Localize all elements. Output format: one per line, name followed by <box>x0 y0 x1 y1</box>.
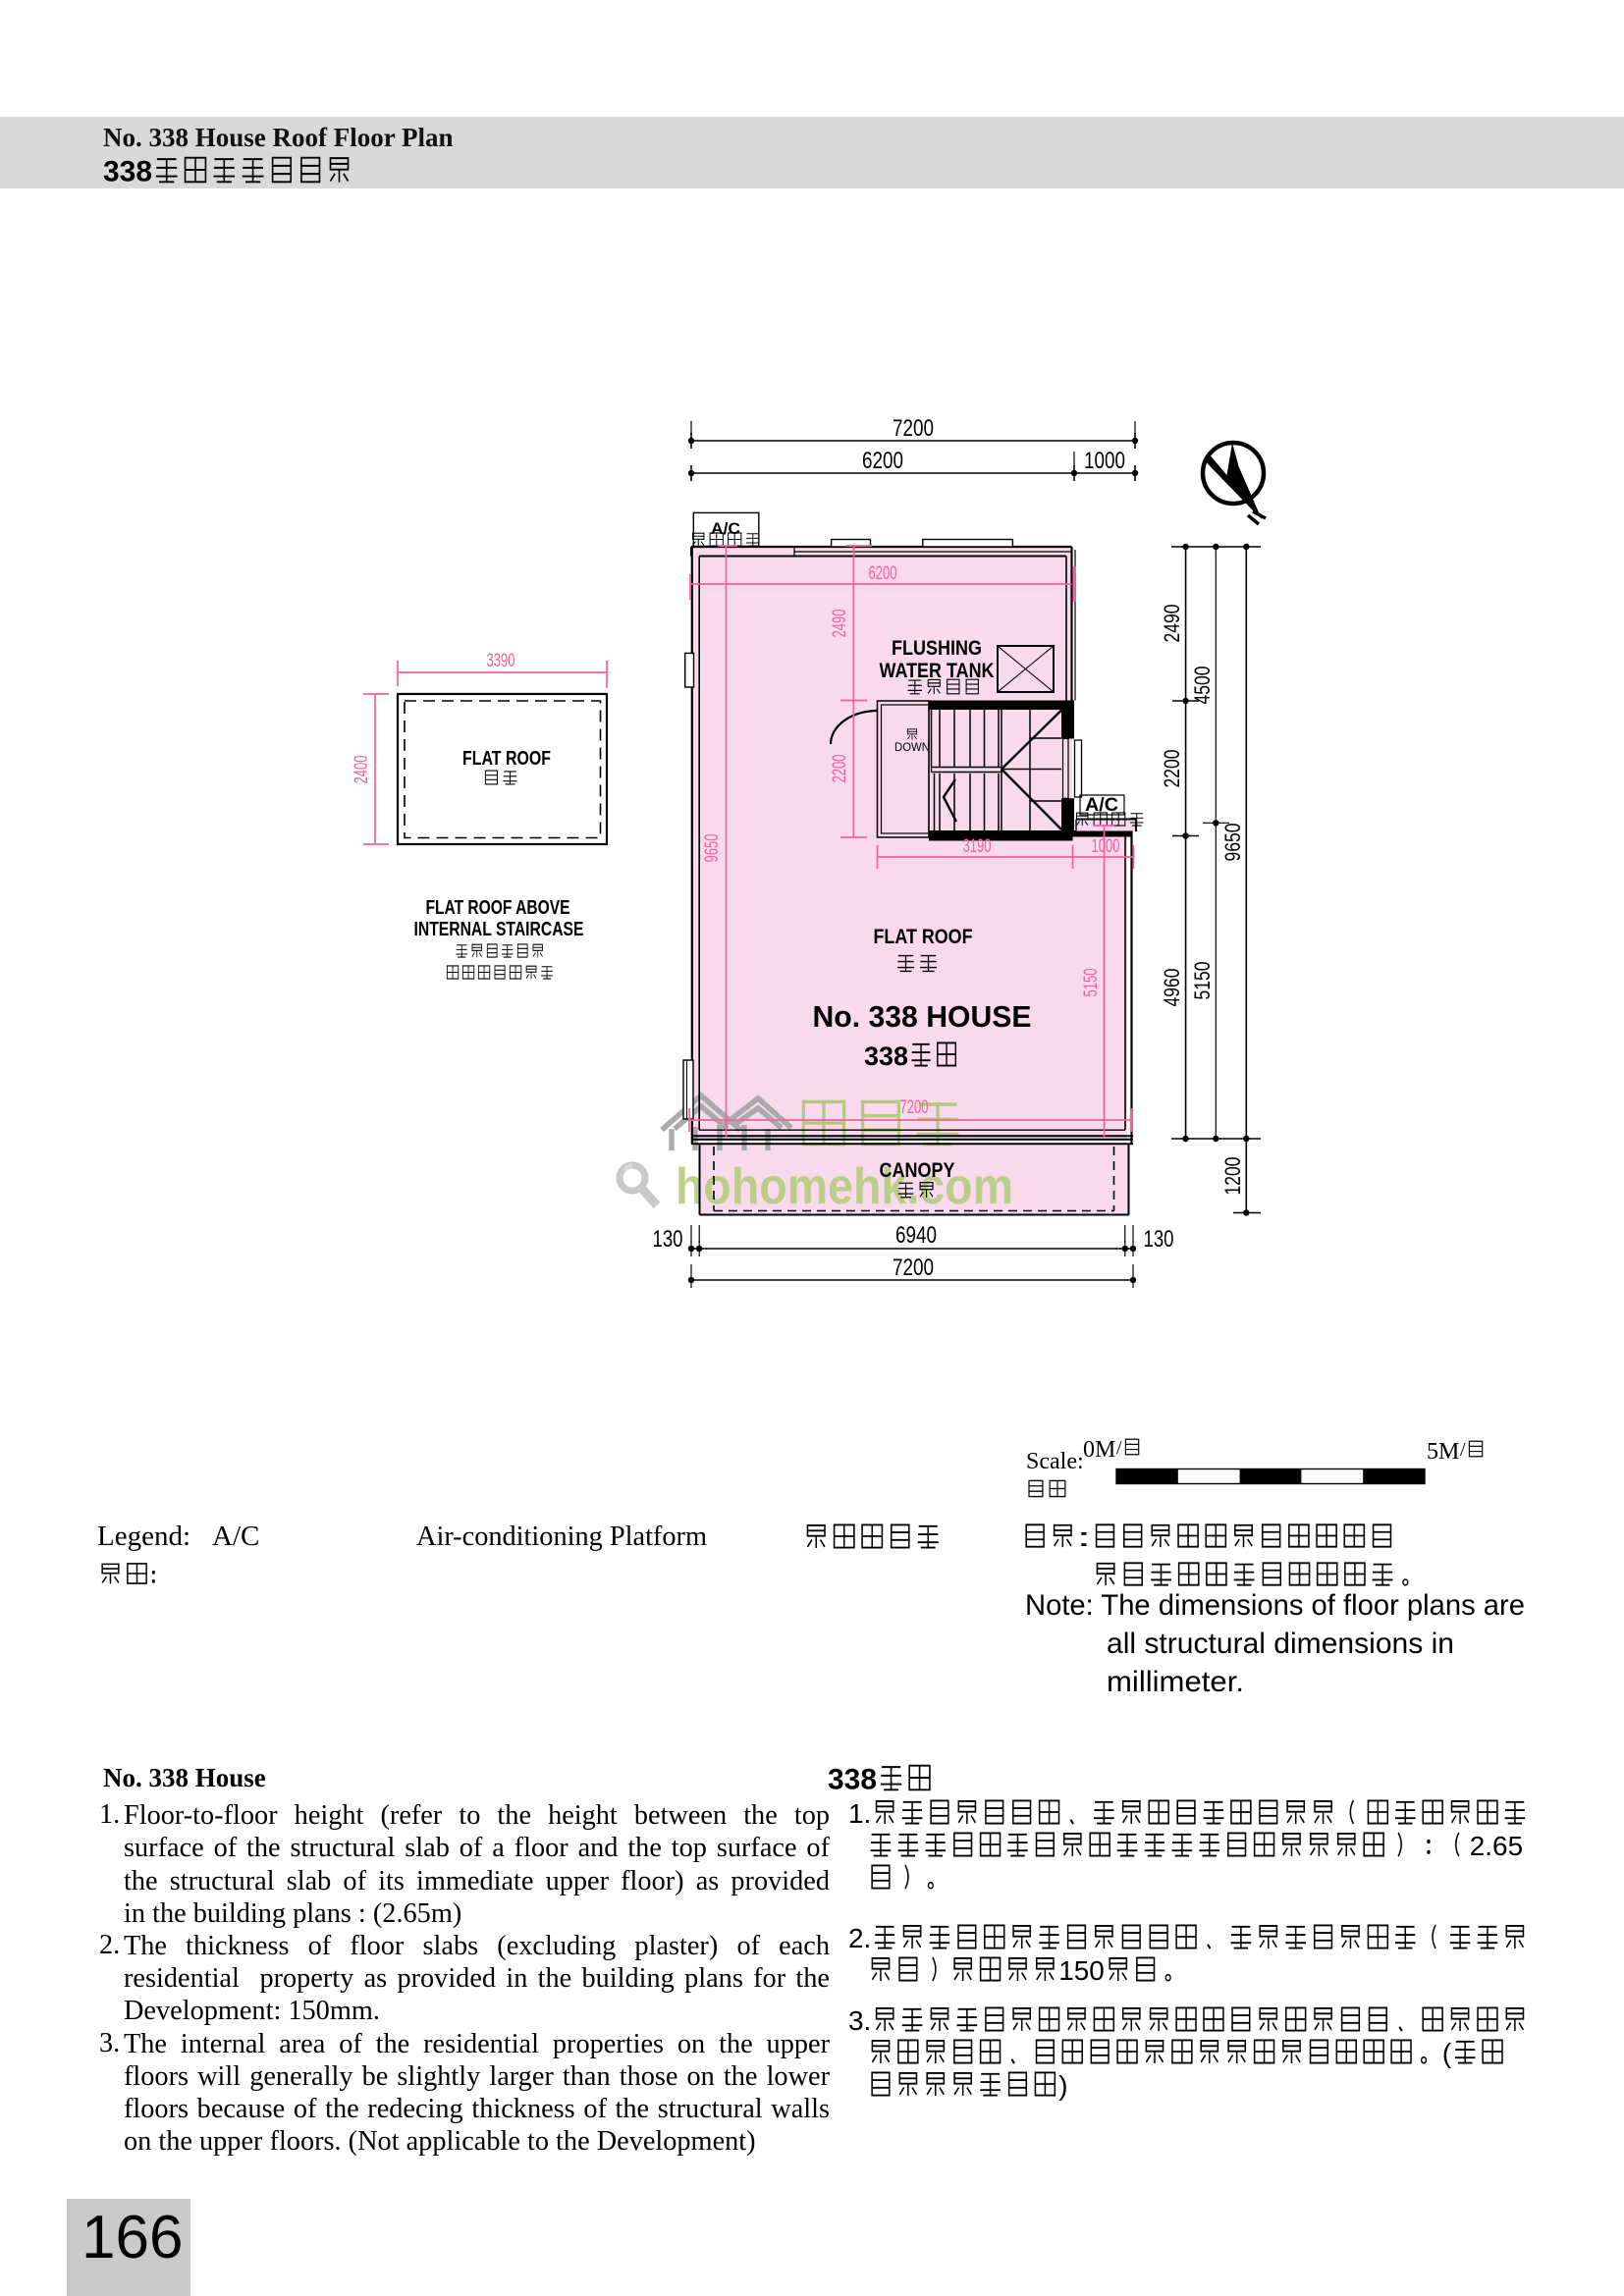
svg-text:2200: 2200 <box>1160 750 1184 788</box>
svg-text:6200: 6200 <box>869 563 897 584</box>
svg-text:0M: 0M <box>1083 1437 1115 1463</box>
svg-text:1.: 1. <box>848 1798 871 1829</box>
svg-text:FLAT ROOF: FLAT ROOF <box>874 926 973 948</box>
svg-text:Legend:: Legend: <box>97 1521 190 1552</box>
svg-text:4500: 4500 <box>1190 667 1215 705</box>
svg-text:6940: 6940 <box>895 1222 937 1249</box>
svg-text::: : <box>150 1562 157 1588</box>
svg-text:9650: 9650 <box>1220 824 1245 862</box>
svg-text:3390: 3390 <box>487 651 515 671</box>
svg-text:No. 338 HOUSE: No. 338 HOUSE <box>813 999 1032 1034</box>
svg-text:1200: 1200 <box>1220 1157 1245 1196</box>
svg-text:2490: 2490 <box>830 610 850 638</box>
svg-text:/: / <box>1460 1439 1466 1461</box>
svg-text:INTERNAL STAIRCASE: INTERNAL STAIRCASE <box>414 919 584 940</box>
svg-text:Air-conditioning Platform: Air-conditioning Platform <box>416 1521 707 1552</box>
svg-text:6200: 6200 <box>862 448 903 474</box>
svg-text:/: / <box>1116 1437 1122 1459</box>
svg-text:338: 338 <box>864 1041 908 1071</box>
svg-text:2200: 2200 <box>830 755 850 783</box>
svg-text::: : <box>1076 1522 1091 1552</box>
svg-text:1000: 1000 <box>1092 836 1120 857</box>
svg-text:WATER TANK: WATER TANK <box>880 660 995 682</box>
svg-text:A/C: A/C <box>212 1521 259 1552</box>
svg-text:FLAT ROOF: FLAT ROOF <box>462 748 551 770</box>
svg-text:9650: 9650 <box>702 834 723 863</box>
svg-text:7200: 7200 <box>893 415 934 442</box>
svg-text:(: ( <box>1442 2038 1452 2068</box>
svg-text:150: 150 <box>1058 1955 1105 1986</box>
svg-text:A/C: A/C <box>711 519 740 538</box>
svg-text:5150: 5150 <box>1190 962 1215 1000</box>
svg-text:CANOPY: CANOPY <box>880 1159 955 1182</box>
svg-text:1000: 1000 <box>1084 448 1125 474</box>
svg-text:Scale:: Scale: <box>1026 1449 1084 1474</box>
svg-text:2.65: 2.65 <box>1470 1831 1523 1861</box>
svg-text:millimeter.: millimeter. <box>1107 1666 1244 1698</box>
svg-text:Note: The dimensions of floor: Note: The dimensions of floor plans are <box>1025 1589 1525 1622</box>
svg-text:3.: 3. <box>848 2005 871 2036</box>
svg-text:3190: 3190 <box>963 836 992 857</box>
svg-text:5150: 5150 <box>1081 969 1102 997</box>
svg-text:338: 338 <box>103 156 152 188</box>
svg-text:5M: 5M <box>1427 1439 1459 1465</box>
svg-text:hohomehk.com: hohomehk.com <box>676 1158 1013 1215</box>
svg-text:2.: 2. <box>848 1923 871 1953</box>
svg-text:7200: 7200 <box>893 1255 934 1281</box>
svg-text:4960: 4960 <box>1160 969 1184 1007</box>
svg-text:130: 130 <box>1144 1226 1174 1253</box>
svg-text:FLAT ROOF ABOVE: FLAT ROOF ABOVE <box>426 897 570 919</box>
svg-text:338: 338 <box>828 1764 877 1796</box>
svg-text:DOWN: DOWN <box>894 740 930 754</box>
svg-text:2400: 2400 <box>352 756 372 784</box>
svg-text:7200: 7200 <box>900 1097 929 1118</box>
svg-text:): ) <box>1058 2070 1067 2101</box>
svg-text:2490: 2490 <box>1160 605 1184 643</box>
svg-text:FLUSHING: FLUSHING <box>892 637 982 660</box>
svg-text:130: 130 <box>653 1226 683 1253</box>
svg-text:all structural dimensions in: all structural dimensions in <box>1107 1628 1454 1660</box>
